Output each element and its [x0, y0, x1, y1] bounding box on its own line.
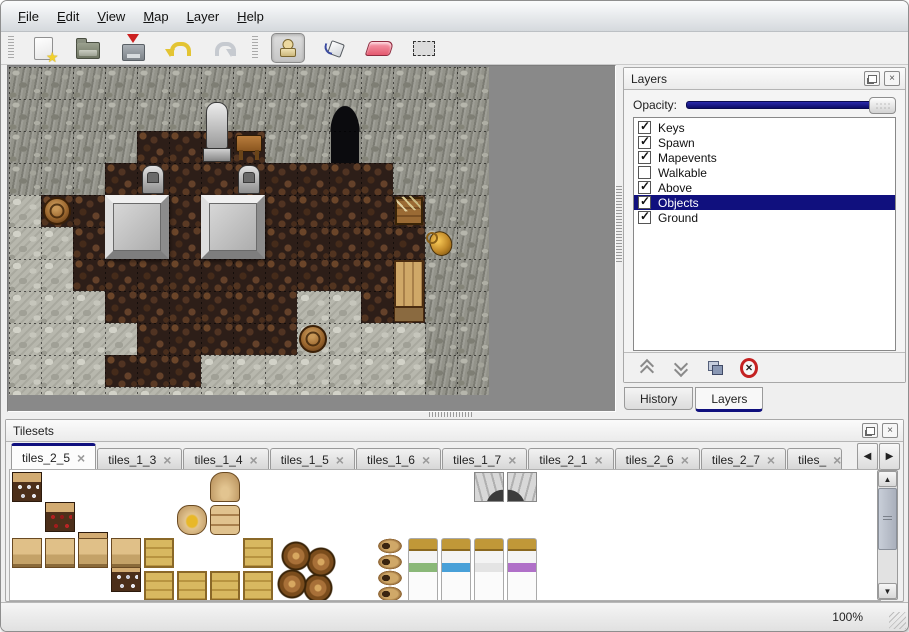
tile-arch-right[interactable]: [507, 472, 537, 502]
tileset-tab-label: tiles_2_1: [539, 453, 587, 467]
layer-visibility-checkbox[interactable]: [638, 211, 651, 224]
map-tile[interactable]: [137, 323, 169, 355]
delete-layer-button[interactable]: [740, 359, 758, 376]
close-tab-icon[interactable]: ×: [250, 453, 258, 467]
map-object-cabinet[interactable]: [393, 259, 425, 323]
map-tile[interactable]: [169, 67, 201, 99]
opacity-slider-track[interactable]: [686, 101, 894, 109]
map-tile[interactable]: [265, 131, 297, 163]
layer-visibility-checkbox[interactable]: [638, 121, 651, 134]
layer-name: Above: [658, 181, 692, 195]
close-tab-icon[interactable]: ×: [681, 453, 689, 467]
map-tile[interactable]: [137, 387, 169, 395]
tab-scroll-buttons: ◀ ▶: [856, 443, 900, 470]
select-tool-button[interactable]: [408, 34, 440, 62]
layer-visibility-checkbox[interactable]: [638, 166, 651, 179]
map-tile[interactable]: [41, 163, 73, 195]
tileset-tabbar: tiles_2_5×tiles_1_3×tiles_1_4×tiles_1_5×…: [11, 442, 900, 470]
map-tile[interactable]: [425, 163, 457, 195]
vertical-splitter[interactable]: [616, 186, 622, 262]
map-tile[interactable]: [9, 195, 41, 227]
map-tile[interactable]: [297, 195, 329, 227]
tileset-tab-label: tiles_1_3: [108, 453, 156, 467]
map-tile[interactable]: [393, 323, 425, 355]
map-tile[interactable]: [169, 323, 201, 355]
scroll-down-button[interactable]: ▼: [878, 583, 897, 599]
map-tile[interactable]: [73, 387, 105, 395]
horizontal-splitter[interactable]: [429, 412, 473, 417]
map-tile[interactable]: [201, 67, 233, 99]
map-object-tombstone[interactable]: [233, 163, 265, 195]
map-tile[interactable]: [233, 323, 265, 355]
map-tile[interactable]: [297, 387, 329, 395]
map-tile[interactable]: [265, 387, 297, 395]
map-tile[interactable]: [361, 323, 393, 355]
close-tab-icon[interactable]: ×: [594, 453, 602, 467]
map-tile[interactable]: [137, 67, 169, 99]
map-tile[interactable]: [329, 227, 361, 259]
map-tile[interactable]: [201, 259, 233, 291]
layer-name: Walkable: [658, 166, 707, 180]
map-tile[interactable]: [265, 291, 297, 323]
dock-tab-history[interactable]: History: [624, 387, 693, 410]
map-canvas[interactable]: [9, 67, 489, 395]
layer-buttons: [624, 352, 905, 382]
map-tile[interactable]: [137, 99, 169, 131]
float-panel-button[interactable]: [864, 71, 880, 86]
map-tile[interactable]: [137, 131, 169, 163]
map-tile[interactable]: [329, 99, 361, 131]
layer-row-spawn[interactable]: Spawn: [634, 135, 895, 150]
tileset-tab-tiles_2_6[interactable]: tiles_2_6×: [615, 448, 700, 470]
tileset-grid[interactable]: [9, 469, 881, 601]
tile-shelf-red[interactable]: [45, 502, 75, 532]
menu-file[interactable]: File: [9, 6, 48, 27]
map-tile[interactable]: [233, 355, 265, 387]
tilesets-dock: Tilesets × tiles_2_5×tiles_1_3×tiles_1_4…: [5, 419, 904, 602]
close-tab-icon[interactable]: ×: [77, 451, 85, 465]
layer-row-mapevents[interactable]: Mapevents: [634, 150, 895, 165]
map-tile[interactable]: [9, 259, 41, 291]
layers-panel-title: Layers: [631, 72, 860, 86]
map-tile[interactable]: [425, 195, 457, 227]
menubar: FileEditViewMapLayerHelp: [1, 1, 908, 32]
toolbar-grip[interactable]: [8, 36, 14, 60]
close-panel-button[interactable]: ×: [882, 423, 898, 438]
map-tile[interactable]: [457, 195, 489, 227]
map-tile[interactable]: [329, 67, 361, 99]
layer-name: Objects: [658, 196, 699, 210]
paint-bucket-icon: [324, 39, 344, 58]
tileset-tab-tiles_1_4[interactable]: tiles_1_4×: [183, 448, 268, 470]
map-tile[interactable]: [169, 227, 201, 259]
toolbar-grip[interactable]: [252, 36, 258, 60]
tile-crate-yellow[interactable]: [210, 571, 240, 601]
tile-arch-left[interactable]: [474, 472, 504, 502]
app-window: FileEditViewMapLayerHelp Layers × Opacit…: [0, 0, 909, 632]
tile-crate-yellow[interactable]: [243, 538, 273, 568]
map-tile[interactable]: [233, 387, 265, 395]
map-tile[interactable]: [361, 131, 393, 163]
menu-help[interactable]: Help: [228, 6, 273, 27]
menu-view[interactable]: View: [88, 6, 134, 27]
map-tile[interactable]: [329, 323, 361, 355]
layer-row-above[interactable]: Above: [634, 180, 895, 195]
map-tile[interactable]: [169, 131, 201, 163]
copy-icon: [708, 361, 723, 375]
map-tile[interactable]: [9, 163, 41, 195]
save-file-button[interactable]: [117, 34, 149, 62]
tileset-tab-label: tiles_1_6: [367, 453, 415, 467]
map-tile[interactable]: [393, 387, 425, 395]
layer-name: Spawn: [658, 136, 695, 150]
map-tile[interactable]: [41, 67, 73, 99]
layer-name: Ground: [658, 211, 698, 225]
tile-pots-stack[interactable]: [375, 538, 405, 601]
map-tile[interactable]: [105, 67, 137, 99]
opacity-slider[interactable]: [686, 97, 896, 112]
map-object-gold-pot[interactable]: [425, 227, 457, 259]
float-panel-button[interactable]: [862, 423, 878, 438]
map-tile[interactable]: [73, 291, 105, 323]
map-tile[interactable]: [265, 67, 297, 99]
scroll-up-button[interactable]: ▲: [878, 471, 897, 487]
map-tile[interactable]: [425, 291, 457, 323]
map-tile[interactable]: [393, 355, 425, 387]
tileset-tab-tiles_2_1[interactable]: tiles_2_1×: [528, 448, 613, 470]
map-tile[interactable]: [393, 163, 425, 195]
map-tile[interactable]: [425, 355, 457, 387]
tile-shelf-plates[interactable]: [12, 472, 42, 502]
menu-edit[interactable]: Edit: [48, 6, 88, 27]
map-object-table[interactable]: [233, 131, 265, 163]
layer-list: KeysSpawnMapeventsWalkableAboveObjectsGr…: [633, 117, 896, 351]
map-tile[interactable]: [265, 163, 297, 195]
map-tile[interactable]: [457, 163, 489, 195]
map-tile[interactable]: [9, 355, 41, 387]
opacity-row: Opacity:: [624, 90, 905, 117]
map-tile[interactable]: [361, 163, 393, 195]
tile-sack-open[interactable]: [177, 505, 207, 535]
map-tile[interactable]: [425, 323, 457, 355]
map-tile[interactable]: [297, 99, 329, 131]
map-tile[interactable]: [457, 131, 489, 163]
map-tile[interactable]: [9, 99, 41, 131]
map-tile[interactable]: [73, 227, 105, 259]
tileset-tab-label: tiles_1_5: [281, 453, 329, 467]
map-tile[interactable]: [361, 355, 393, 387]
map-object-crate-tools[interactable]: [393, 195, 425, 227]
map-tile[interactable]: [201, 163, 233, 195]
map-tile[interactable]: [9, 291, 41, 323]
close-tab-icon[interactable]: ×: [422, 453, 430, 467]
map-tile[interactable]: [297, 163, 329, 195]
map-tile[interactable]: [265, 227, 297, 259]
map-tile[interactable]: [329, 195, 361, 227]
map-tile[interactable]: [73, 99, 105, 131]
layer-row-objects[interactable]: Objects: [634, 195, 895, 210]
tileset-tab-tiles_1_6[interactable]: tiles_1_6×: [356, 448, 441, 470]
map-tile[interactable]: [201, 355, 233, 387]
map-tile[interactable]: [169, 259, 201, 291]
map-tile[interactable]: [457, 291, 489, 323]
map-tile[interactable]: [105, 131, 137, 163]
open-file-button[interactable]: [72, 34, 104, 62]
map-object-slab[interactable]: [201, 195, 265, 259]
map-tile[interactable]: [457, 259, 489, 291]
map-tile[interactable]: [393, 131, 425, 163]
menu-layer[interactable]: Layer: [178, 6, 229, 27]
map-tile[interactable]: [105, 355, 137, 387]
map-tile[interactable]: [457, 387, 489, 395]
layer-row-ground[interactable]: Ground: [634, 210, 895, 225]
map-tile[interactable]: [393, 67, 425, 99]
layer-name: Mapevents: [658, 151, 717, 165]
map-tile[interactable]: [297, 227, 329, 259]
tile-shelf2-top[interactable]: [45, 538, 75, 568]
map-tile[interactable]: [41, 323, 73, 355]
map-tile[interactable]: [201, 291, 233, 323]
close-icon: ×: [889, 74, 895, 84]
map-tile[interactable]: [265, 195, 297, 227]
tile-shelf2-top[interactable]: [111, 538, 141, 568]
map-tile[interactable]: [9, 387, 41, 395]
map-tile[interactable]: [265, 99, 297, 131]
map-tile[interactable]: [329, 259, 361, 291]
scrollbar-thumb[interactable]: [878, 488, 897, 550]
layer-visibility-checkbox[interactable]: [638, 181, 651, 194]
map-object-barrel[interactable]: [297, 323, 329, 355]
map-object-slab[interactable]: [105, 195, 169, 259]
tile-shelf2-top[interactable]: [12, 538, 42, 568]
map-tile[interactable]: [73, 195, 105, 227]
statusbar: 100%: [1, 602, 908, 631]
tile-barrels-pile[interactable]: [276, 538, 339, 601]
tile-bed-white[interactable]: [474, 538, 504, 601]
delete-icon: [740, 358, 758, 378]
map-tile[interactable]: [105, 387, 137, 395]
close-panel-button[interactable]: ×: [884, 71, 900, 86]
map-tile[interactable]: [361, 99, 393, 131]
close-tab-icon[interactable]: ×: [336, 453, 344, 467]
new-file-button[interactable]: [27, 34, 59, 62]
layer-row-keys[interactable]: Keys: [634, 120, 895, 135]
tileset-tab-label: tiles_1_7: [453, 453, 501, 467]
open-folder-icon: [76, 42, 100, 59]
map-tile[interactable]: [425, 99, 457, 131]
tile-crate-yellow[interactable]: [144, 538, 174, 568]
toolbar: [1, 32, 908, 65]
float-icon: [868, 75, 877, 83]
tilesets-titlebar: Tilesets ×: [6, 420, 903, 442]
map-tile[interactable]: [329, 291, 361, 323]
lower-layer-button[interactable]: [672, 359, 690, 376]
tileset-tab-tiles_2_7[interactable]: tiles_2_7×: [701, 448, 786, 470]
chevron-down-icon: [674, 360, 688, 375]
map-tile[interactable]: [329, 387, 361, 395]
layer-row-walkable[interactable]: Walkable: [634, 165, 895, 180]
tileset-scrollbar[interactable]: ▲ ▼: [877, 470, 898, 600]
tileset-tab-tiles_1_7[interactable]: tiles_1_7×: [442, 448, 527, 470]
menu-map[interactable]: Map: [134, 6, 177, 27]
map-tile[interactable]: [169, 99, 201, 131]
tileset-tabs: tiles_2_5×tiles_1_3×tiles_1_4×tiles_1_5×…: [11, 443, 854, 470]
map-tile[interactable]: [457, 67, 489, 99]
map-tile[interactable]: [329, 355, 361, 387]
tileset-tab-label: tiles_: [798, 453, 826, 467]
map-tile[interactable]: [137, 291, 169, 323]
zoom-level: 100%: [832, 610, 863, 624]
map-tile[interactable]: [73, 323, 105, 355]
tilesets-panel-title: Tilesets: [13, 424, 858, 438]
map-tile[interactable]: [297, 355, 329, 387]
map-tile[interactable]: [41, 259, 73, 291]
map-tile[interactable]: [233, 291, 265, 323]
map-tile[interactable]: [361, 291, 393, 323]
tileset-tab-tiles_1_3[interactable]: tiles_1_3×: [97, 448, 182, 470]
map-tile[interactable]: [265, 259, 297, 291]
map-tile[interactable]: [201, 387, 233, 395]
tileset-tab-label: tiles_2_6: [626, 453, 674, 467]
map-tile[interactable]: [137, 355, 169, 387]
opacity-label: Opacity:: [633, 98, 677, 112]
map-tile[interactable]: [9, 323, 41, 355]
layer-visibility-checkbox[interactable]: [638, 136, 651, 149]
close-tab-icon[interactable]: ×: [163, 453, 171, 467]
undo-arrow-icon: [168, 40, 188, 56]
map-tile[interactable]: [105, 291, 137, 323]
layer-visibility-checkbox[interactable]: [638, 151, 651, 164]
close-tab-icon[interactable]: ×: [833, 453, 841, 467]
map-tile[interactable]: [361, 195, 393, 227]
map-tile[interactable]: [233, 67, 265, 99]
map-object-tombstone[interactable]: [137, 163, 169, 195]
map-tile[interactable]: [105, 323, 137, 355]
tile-bed-purple[interactable]: [507, 538, 537, 601]
map-tile[interactable]: [73, 131, 105, 163]
close-tab-icon[interactable]: ×: [767, 453, 775, 467]
close-icon: ×: [887, 426, 893, 436]
map-tile[interactable]: [361, 259, 393, 291]
map-tile[interactable]: [457, 99, 489, 131]
map-tile[interactable]: [169, 291, 201, 323]
tile-bed-blue[interactable]: [441, 538, 471, 601]
map-tile[interactable]: [457, 227, 489, 259]
map-tile[interactable]: [73, 163, 105, 195]
map-tile[interactable]: [329, 131, 361, 163]
dock-tabbar: HistoryLayers: [624, 387, 765, 412]
map-object-barrel[interactable]: [41, 195, 73, 227]
map-tile[interactable]: [41, 291, 73, 323]
tileset-tab-tiles_1_5[interactable]: tiles_1_5×: [270, 448, 355, 470]
tile-crate-yellow[interactable]: [144, 571, 174, 601]
map-tile[interactable]: [297, 131, 329, 163]
map-tile[interactable]: [329, 163, 361, 195]
map-tile[interactable]: [457, 355, 489, 387]
map-tile[interactable]: [9, 227, 41, 259]
map-tile[interactable]: [73, 355, 105, 387]
map-tile[interactable]: [169, 387, 201, 395]
map-tile[interactable]: [425, 67, 457, 99]
new-file-icon: [34, 37, 53, 60]
map-tile[interactable]: [169, 355, 201, 387]
map-tile[interactable]: [425, 131, 457, 163]
scroll-tabs-left-button[interactable]: ◀: [857, 443, 878, 470]
raise-layer-button[interactable]: [638, 359, 656, 376]
map-tile[interactable]: [233, 259, 265, 291]
map-object-statue[interactable]: [201, 99, 233, 163]
map-tile[interactable]: [297, 67, 329, 99]
stamp-tool-button[interactable]: [271, 33, 305, 63]
tile-sack-stack[interactable]: [210, 505, 240, 535]
scroll-tabs-right-button[interactable]: ▶: [879, 443, 900, 470]
eraser-tool-button[interactable]: [363, 34, 395, 62]
map-tile[interactable]: [361, 387, 393, 395]
map-tile[interactable]: [41, 355, 73, 387]
tile-crate-yellow[interactable]: [177, 571, 207, 601]
redo-button[interactable]: [207, 34, 239, 62]
opacity-slider-handle[interactable]: [869, 97, 896, 114]
save-icon: [122, 44, 145, 61]
map-tile[interactable]: [105, 163, 137, 195]
selection-rect-icon: [413, 41, 435, 56]
map-tile[interactable]: [41, 99, 73, 131]
tileset-tab-tiles_[interactable]: tiles_×: [787, 448, 842, 470]
tile-sack[interactable]: [210, 472, 240, 502]
tileset-tab-tiles_2_5[interactable]: tiles_2_5×: [11, 443, 96, 470]
dock-tab-layers[interactable]: Layers: [695, 387, 763, 412]
resize-grip[interactable]: [889, 612, 906, 629]
layer-visibility-checkbox[interactable]: [638, 196, 651, 209]
tile-bed-green[interactable]: [408, 538, 438, 601]
duplicate-layer-button[interactable]: [706, 359, 724, 376]
map-tile[interactable]: [137, 259, 169, 291]
map-tile[interactable]: [169, 163, 201, 195]
tile-shelf2-top[interactable]: [78, 538, 108, 568]
map-tile[interactable]: [425, 259, 457, 291]
map-tile[interactable]: [41, 131, 73, 163]
tile-crate-yellow[interactable]: [243, 571, 273, 601]
map-tile[interactable]: [233, 99, 265, 131]
map-tile[interactable]: [105, 259, 137, 291]
fill-tool-button[interactable]: [318, 34, 350, 62]
map-tile[interactable]: [41, 387, 73, 395]
map-tile[interactable]: [393, 227, 425, 259]
map-tile[interactable]: [105, 99, 137, 131]
map-tile[interactable]: [297, 259, 329, 291]
map-tile[interactable]: [9, 67, 41, 99]
map-tile[interactable]: [73, 259, 105, 291]
map-tile[interactable]: [297, 291, 329, 323]
left-arrow-icon: ◀: [864, 451, 872, 462]
map-tile[interactable]: [201, 323, 233, 355]
map-tile[interactable]: [265, 323, 297, 355]
map-tile[interactable]: [41, 227, 73, 259]
map-tile[interactable]: [265, 355, 297, 387]
layers-dock: Layers × Opacity: KeysSpawnMapeventsWalk…: [623, 67, 906, 383]
map-tile[interactable]: [361, 227, 393, 259]
undo-button[interactable]: [162, 34, 194, 62]
map-tile[interactable]: [393, 99, 425, 131]
close-tab-icon[interactable]: ×: [508, 453, 516, 467]
map-tile[interactable]: [73, 67, 105, 99]
map-tile[interactable]: [425, 387, 457, 395]
map-tile[interactable]: [9, 131, 41, 163]
map-tile[interactable]: [457, 323, 489, 355]
map-tile[interactable]: [361, 67, 393, 99]
down-arrow-icon: ▼: [884, 587, 892, 596]
map-tile[interactable]: [169, 195, 201, 227]
